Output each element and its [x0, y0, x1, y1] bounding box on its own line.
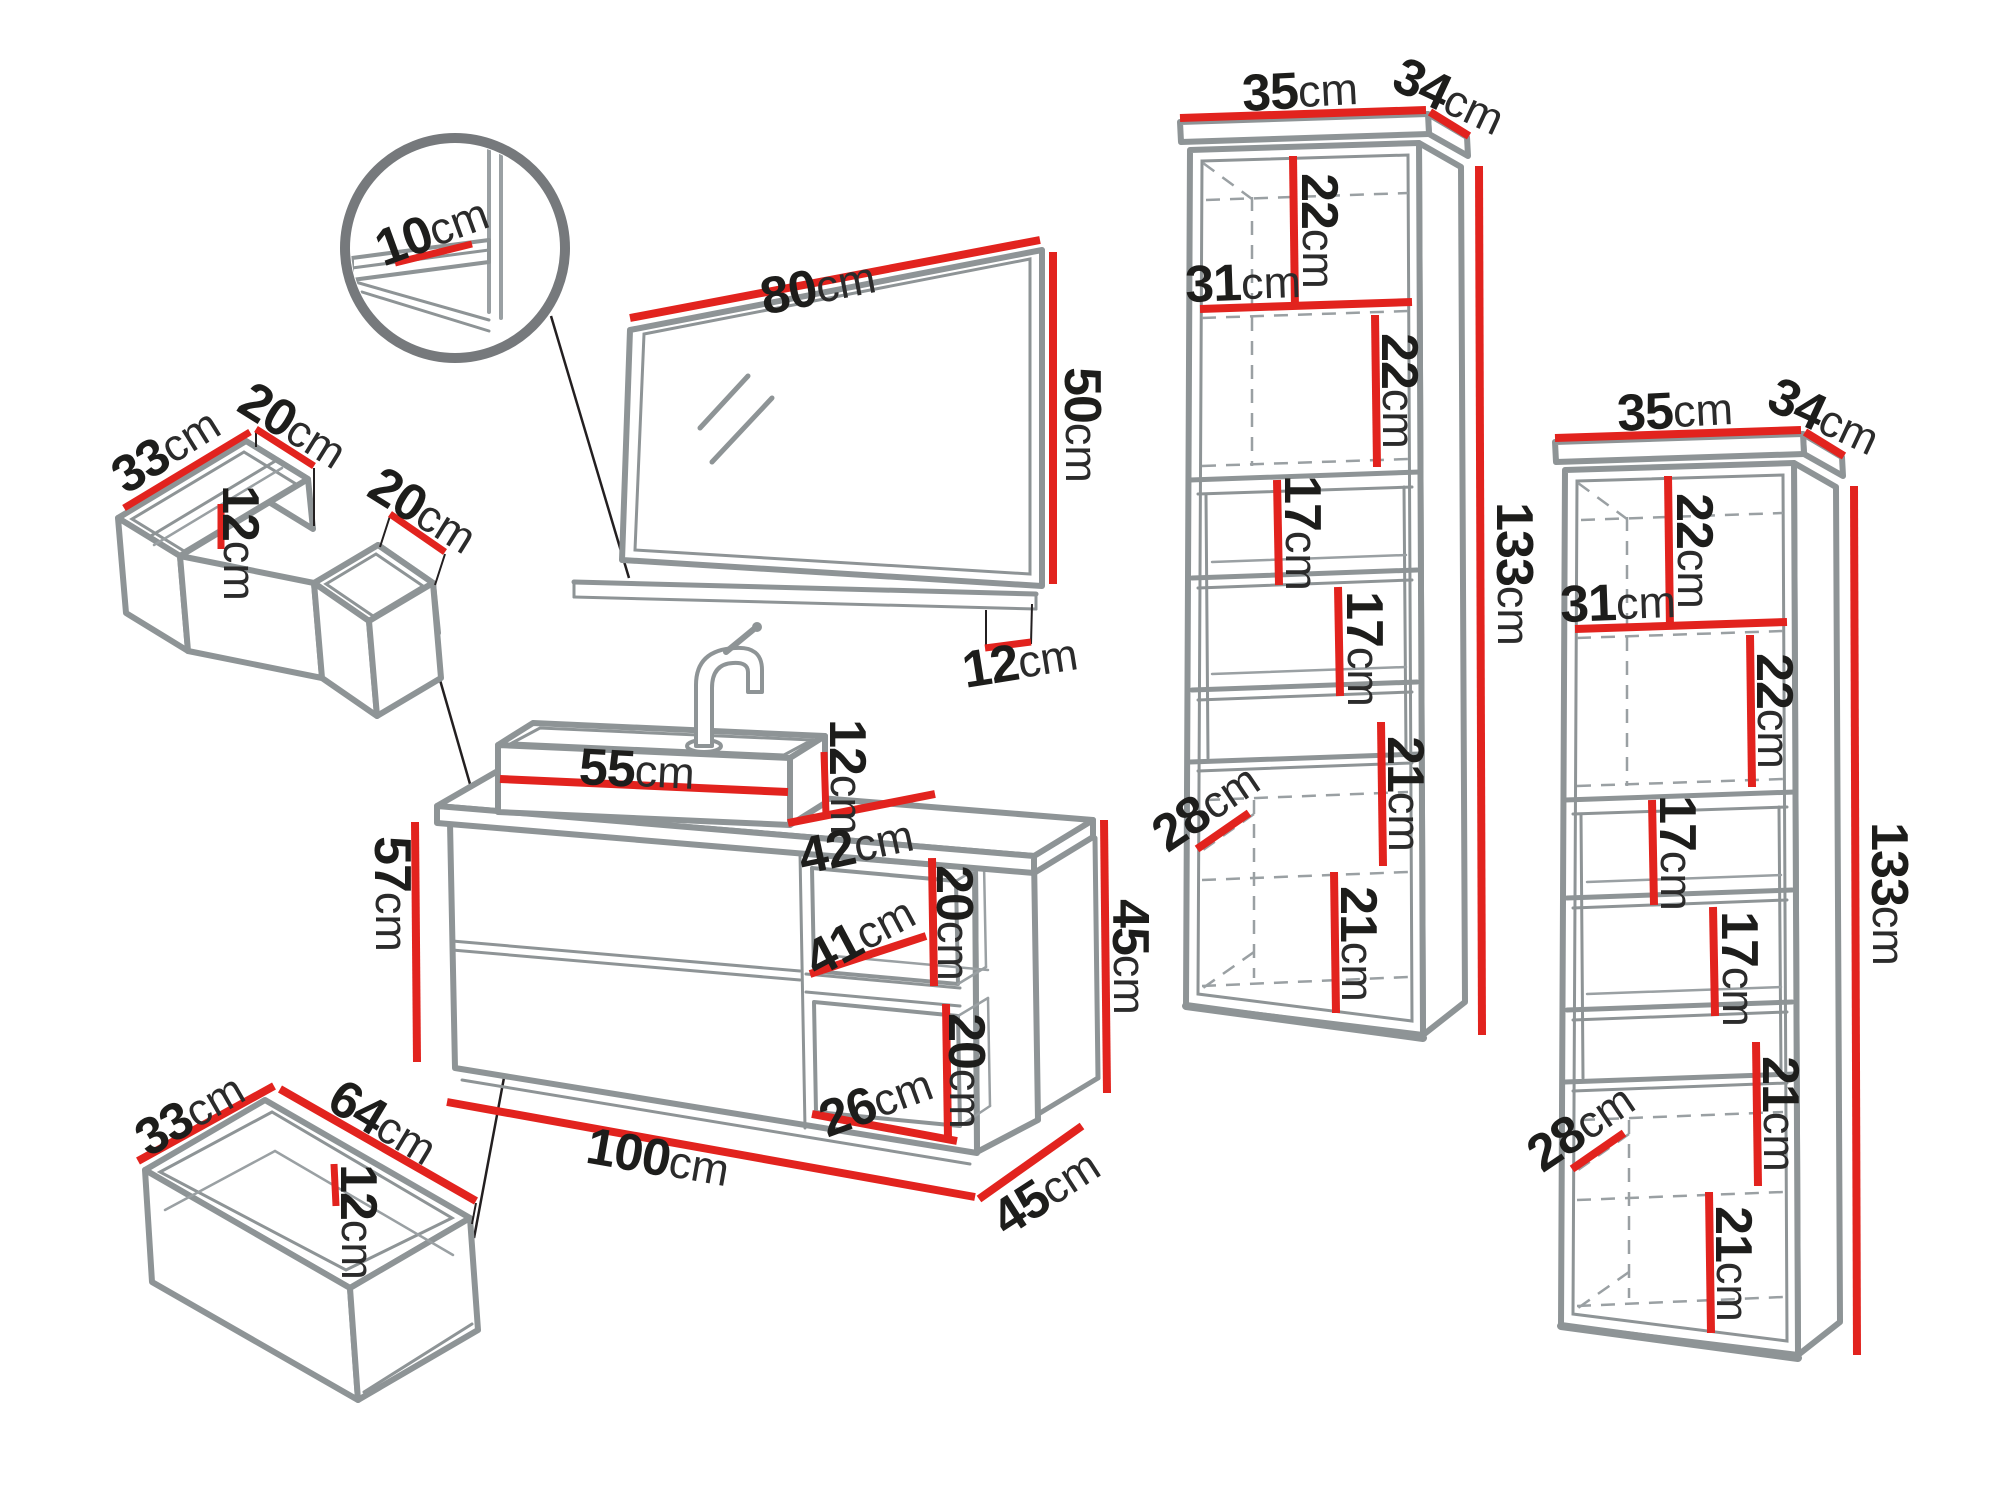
dim-label-cab1-total-height: 133cm: [1485, 502, 1543, 646]
dim-label-niche-lower-height: 20cm: [937, 1013, 995, 1129]
dim-label-organizer-height: 12cm: [211, 485, 269, 601]
dim-label-drawer-height: 12cm: [329, 1164, 387, 1280]
dim-label-mirror-shelf-depth: 12cm: [958, 624, 1081, 699]
dim-label-basin-width: 55cm: [578, 738, 697, 802]
furniture-dimensions-diagram: 10cm 80cm 50cm 12cm 33cm 20cm 12cm 20cm …: [0, 0, 2000, 1499]
dim-label-cab1-comp4-height: 21cm: [1329, 886, 1387, 1002]
vanity-cabinet: [415, 772, 1107, 1199]
dim-label-cab2-comp1-width: 31cm: [1559, 572, 1677, 634]
callout-drawer-to-bottom-drawer: [474, 1051, 509, 1238]
dim-label-cab2-total-height: 133cm: [1860, 822, 1918, 966]
dim-label-cab2-top-width: 35cm: [1616, 379, 1735, 443]
dim-label-niche-height: 45cm: [1101, 899, 1159, 1015]
dim-label-cab1-top-width: 35cm: [1241, 59, 1360, 123]
dim-label-cab2-comp4-height: 21cm: [1704, 1206, 1762, 1322]
dim-label-cab1-comp2-height: 22cm: [1370, 333, 1428, 449]
dim-label-cab2-shelf2-height: 17cm: [1710, 911, 1768, 1027]
dim-label-vanity-height: 57cm: [363, 836, 421, 952]
dim-label-cab2-comp3-height: 21cm: [1751, 1056, 1809, 1172]
dim-label-cab1-shelf2-height: 17cm: [1335, 591, 1393, 707]
dim-label-vanity-width: 100cm: [582, 1117, 734, 1199]
dim-label-cab1-shelf1-height: 17cm: [1273, 475, 1331, 591]
dim-label-cab1-comp1-width: 31cm: [1184, 252, 1302, 314]
callout-magnifier-to-mirror-shelf: [551, 316, 629, 578]
dim-label-mirror-height: 50cm: [1053, 367, 1111, 483]
dim-label-cab2-shelf1-height: 17cm: [1648, 795, 1706, 911]
dim-label-niche-upper-height: 20cm: [925, 865, 983, 981]
dim-label-cab2-comp2-height: 22cm: [1745, 653, 1803, 769]
dim-label-cab1-comp3-height: 21cm: [1376, 736, 1434, 852]
